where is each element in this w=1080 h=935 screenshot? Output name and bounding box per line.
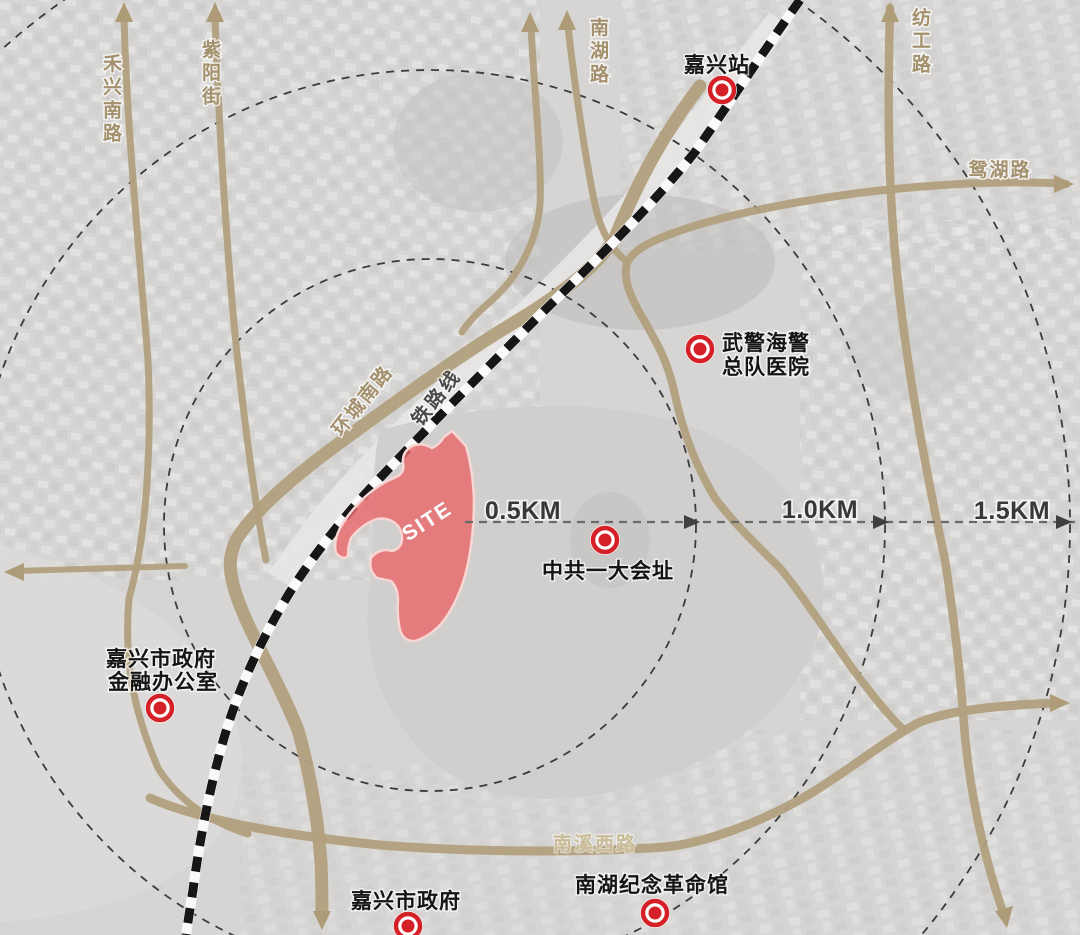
target-marker-icon [707,75,737,105]
label-fanggong-road: 纺工路 [912,6,933,75]
label-yuanhu-road: 鸳湖路 [968,158,1031,181]
target-marker-icon [640,898,670,928]
poi-label-line2: 金融办公室 [107,670,218,694]
label-nanhu-road: 南湖路 [590,17,611,85]
site-analysis-map: SITE 0.5KM 1.0KM 1.5KM 禾兴南路 紫阳街 南湖路 纺工路 … [0,0,1080,935]
city-texture-southeast [690,730,1080,935]
poi-label-line2: 总队医院 [722,355,810,379]
target-marker-icon [590,525,620,555]
poi-label: 中共一大会址 [542,559,674,583]
poi-label: 南湖纪念革命馆 [575,873,729,897]
label-ziyang-street: 紫阳街 [201,39,223,107]
poi-label-line1: 武警海警 [722,331,810,355]
poi-label: 嘉兴站 [684,53,750,77]
city-texture-east [800,220,1080,720]
distance-label-15km: 1.5KM [974,497,1050,525]
label-nanxi-west-road: 南溪西路 [553,832,637,855]
map-canvas: SITE 0.5KM 1.0KM 1.5KM 禾兴南路 紫阳街 南湖路 纺工路 … [0,0,1080,935]
poi-label: 嘉兴市政府 [351,889,461,913]
distance-label-10km: 1.0KM [782,496,858,524]
target-marker-icon [145,693,175,723]
target-marker-icon [685,334,715,364]
distance-label-05km: 0.5KM [485,497,561,525]
poi-label-line1: 嘉兴市政府 [106,647,216,671]
